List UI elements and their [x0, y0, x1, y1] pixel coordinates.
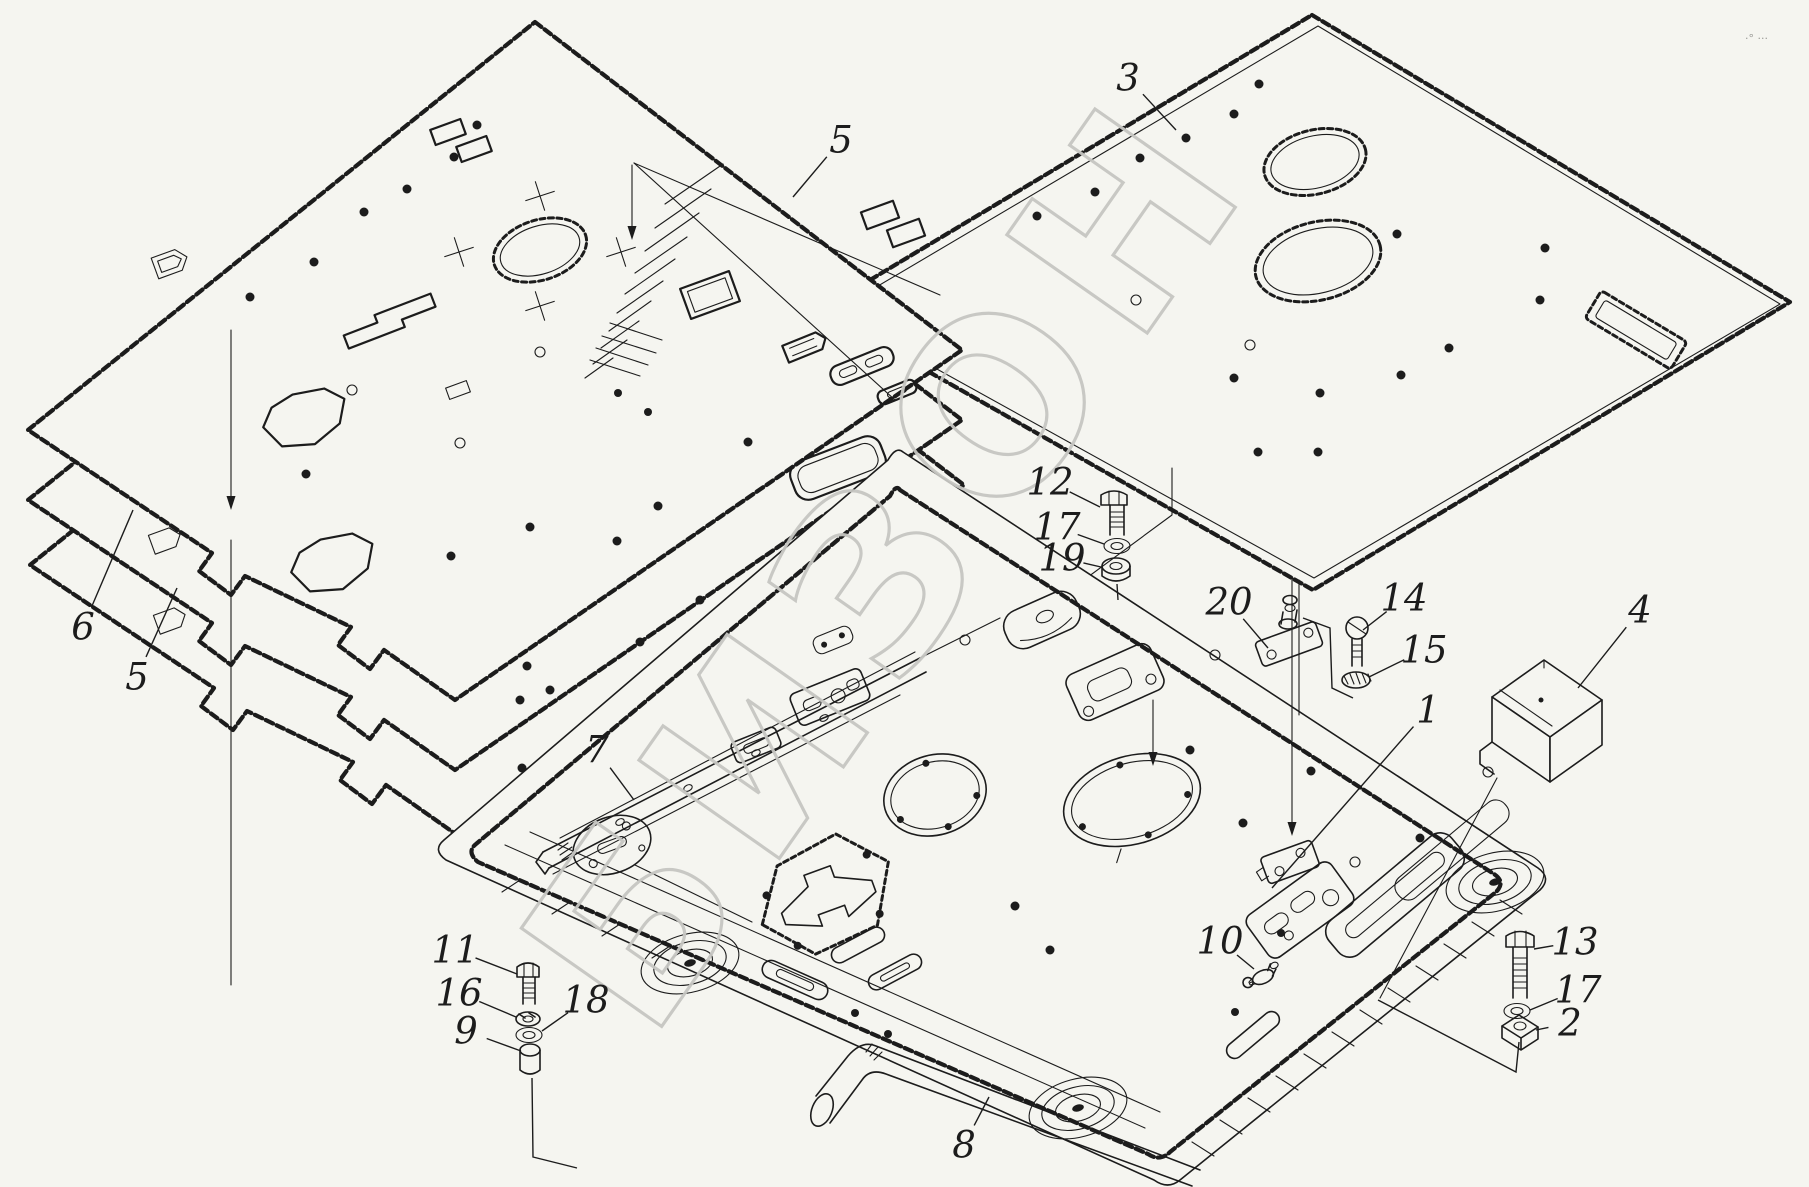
callout-19: 19 [1038, 537, 1101, 580]
callout-label: 9 [454, 1010, 478, 1053]
bolt-13 [1506, 931, 1534, 998]
callout-leader [793, 157, 827, 197]
callout-label: 10 [1196, 920, 1243, 963]
bolt-11 [517, 963, 539, 1004]
callout-5: 5 [793, 119, 853, 198]
callout-leader [487, 1039, 521, 1051]
callout-14: 14 [1363, 577, 1428, 631]
callout-label: 16 [435, 972, 482, 1015]
callout-13: 13 [1534, 921, 1599, 964]
callout-label: 12 [1026, 461, 1073, 504]
callout-label: 7 [585, 729, 609, 772]
callout-label: 6 [71, 606, 95, 649]
callout-label: 19 [1038, 537, 1085, 580]
callout-label: 4 [1627, 589, 1652, 632]
callout-label: 11 [431, 929, 478, 972]
washer-15 [1342, 672, 1371, 688]
washer-17-upper [1104, 539, 1130, 554]
callout-4: 4 [1578, 589, 1652, 689]
callout-18: 18 [542, 979, 610, 1032]
spacer-9 [520, 1044, 540, 1074]
corner-mark: ·° ··· [1745, 32, 1768, 45]
callout-leader [1083, 563, 1101, 567]
callout-leader [479, 1002, 516, 1017]
callout-label: 15 [1400, 629, 1447, 672]
bolt-12 [1101, 491, 1127, 535]
callout-label: 14 [1380, 577, 1427, 620]
callout-20: 20 [1204, 581, 1268, 649]
callout-leader [1534, 946, 1553, 949]
washer-16 [516, 1012, 540, 1026]
screw-14 [1346, 617, 1368, 666]
callout-label: 2 [1557, 1002, 1582, 1045]
callout-label: 8 [952, 1124, 976, 1167]
washer-18 [516, 1028, 542, 1043]
callout-8: 8 [952, 1097, 989, 1167]
parts-diagram-page: БИЗОН ·° ··· 356571217192014154110131721… [0, 0, 1809, 1187]
nut-2 [1502, 1015, 1538, 1050]
callout-leader [1369, 660, 1404, 677]
callout-label: 1 [1416, 689, 1440, 732]
callout-label: 5 [125, 656, 149, 699]
nut-19 [1102, 558, 1130, 581]
callout-label: 5 [829, 119, 853, 162]
callout-label: 20 [1204, 581, 1252, 624]
callout-label: 3 [1116, 57, 1140, 100]
callout-15: 15 [1369, 629, 1448, 678]
callout-leader [1578, 627, 1626, 688]
exploded-parts-diagram: БИЗОН ·° ··· 356571217192014154110131721… [0, 0, 1809, 1187]
callout-label: 13 [1551, 921, 1598, 964]
callout-label: 18 [562, 979, 609, 1022]
callout-9: 9 [454, 1010, 521, 1053]
callout-2: 2 [1536, 1002, 1582, 1045]
